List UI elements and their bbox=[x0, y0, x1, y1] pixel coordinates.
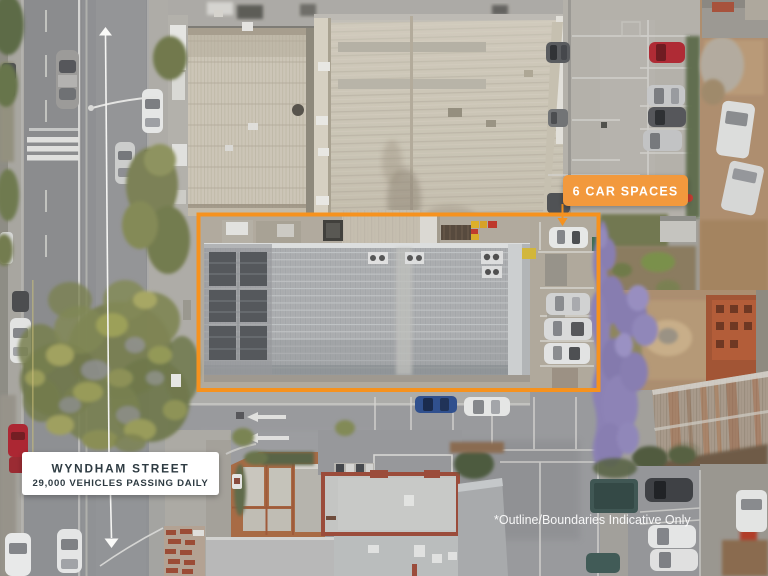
svg-text:29,000 VEHICLES PASSING DAILY: 29,000 VEHICLES PASSING DAILY bbox=[33, 478, 209, 489]
svg-text:6 CAR SPACES: 6 CAR SPACES bbox=[573, 185, 679, 199]
svg-text:WYNDHAM STREET: WYNDHAM STREET bbox=[52, 462, 190, 476]
svg-text:*Outline/Boundaries Indicative: *Outline/Boundaries Indicative Only bbox=[494, 513, 691, 527]
